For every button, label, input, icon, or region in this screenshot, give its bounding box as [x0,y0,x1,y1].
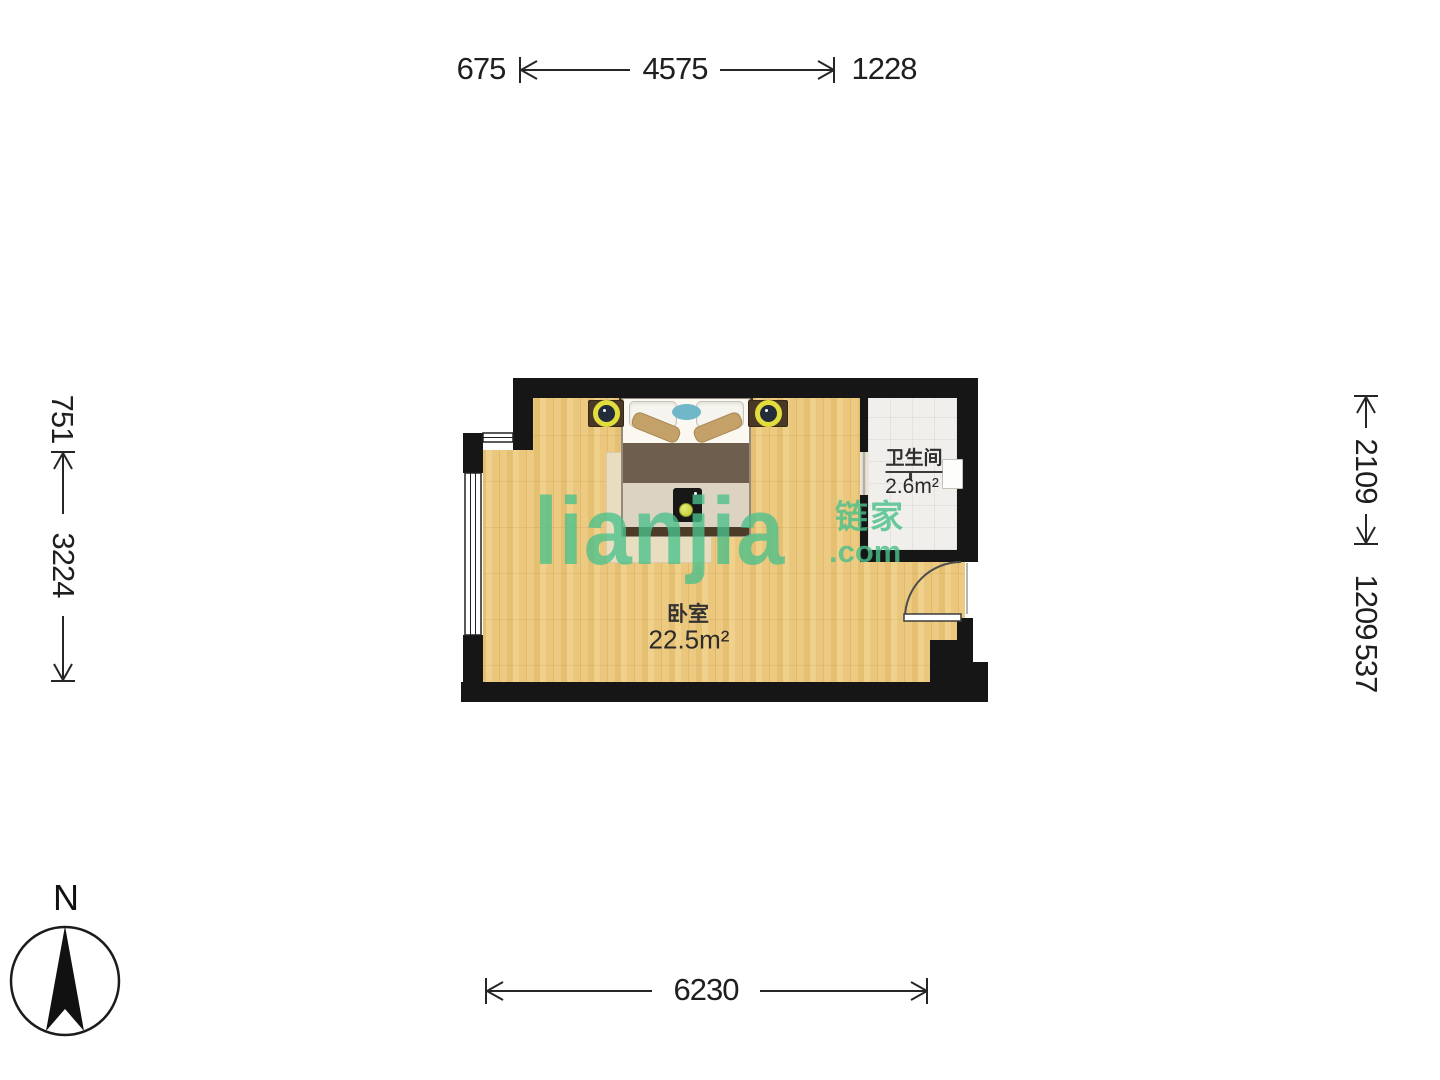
dim-right-middle: 1209 [1348,575,1384,640]
dim-left-top: 751 [44,395,80,444]
bathroom-area: 2.6m² [885,475,939,499]
decor-ball [679,503,693,517]
lamp-left-icon [593,400,620,427]
lamp-right-icon [755,400,782,427]
dim-left-middle: 3224 [45,533,81,598]
dim-bottom: 6230 [674,972,739,1008]
compass-circle [11,927,119,1035]
dim-top-left: 675 [457,51,506,87]
cushion-teal [672,404,701,420]
bathroom-name: 卫生间 [885,443,942,473]
bedroom-area: 22.5m² [649,625,730,656]
window-left-icon [465,473,481,635]
dim-top-right: 1228 [852,51,917,87]
compass [11,926,119,1035]
bedroom-name: 卧室 [667,598,709,628]
north-arrow-icon [46,926,84,1031]
tablet-on-bed [673,488,702,522]
floorplan-canvas: 675 4575 1228 6230 751 3224 2109 1209 53… [0,0,1440,1080]
bathroom-door-threshold [860,452,869,495]
dim-right-top: 2109 [1348,439,1384,504]
dim-right-bottom: 537 [1348,644,1384,693]
bathroom-washbasin [942,459,963,489]
bed-footer [623,527,749,536]
bed-blanket-dark [623,443,749,483]
tablet-camera-dot [694,492,697,495]
window-top-left-icon [483,433,513,442]
bedroom-wood-floor [0,0,1440,1080]
compass-north-label: N [53,877,79,919]
dim-top-middle: 4575 [643,51,708,87]
